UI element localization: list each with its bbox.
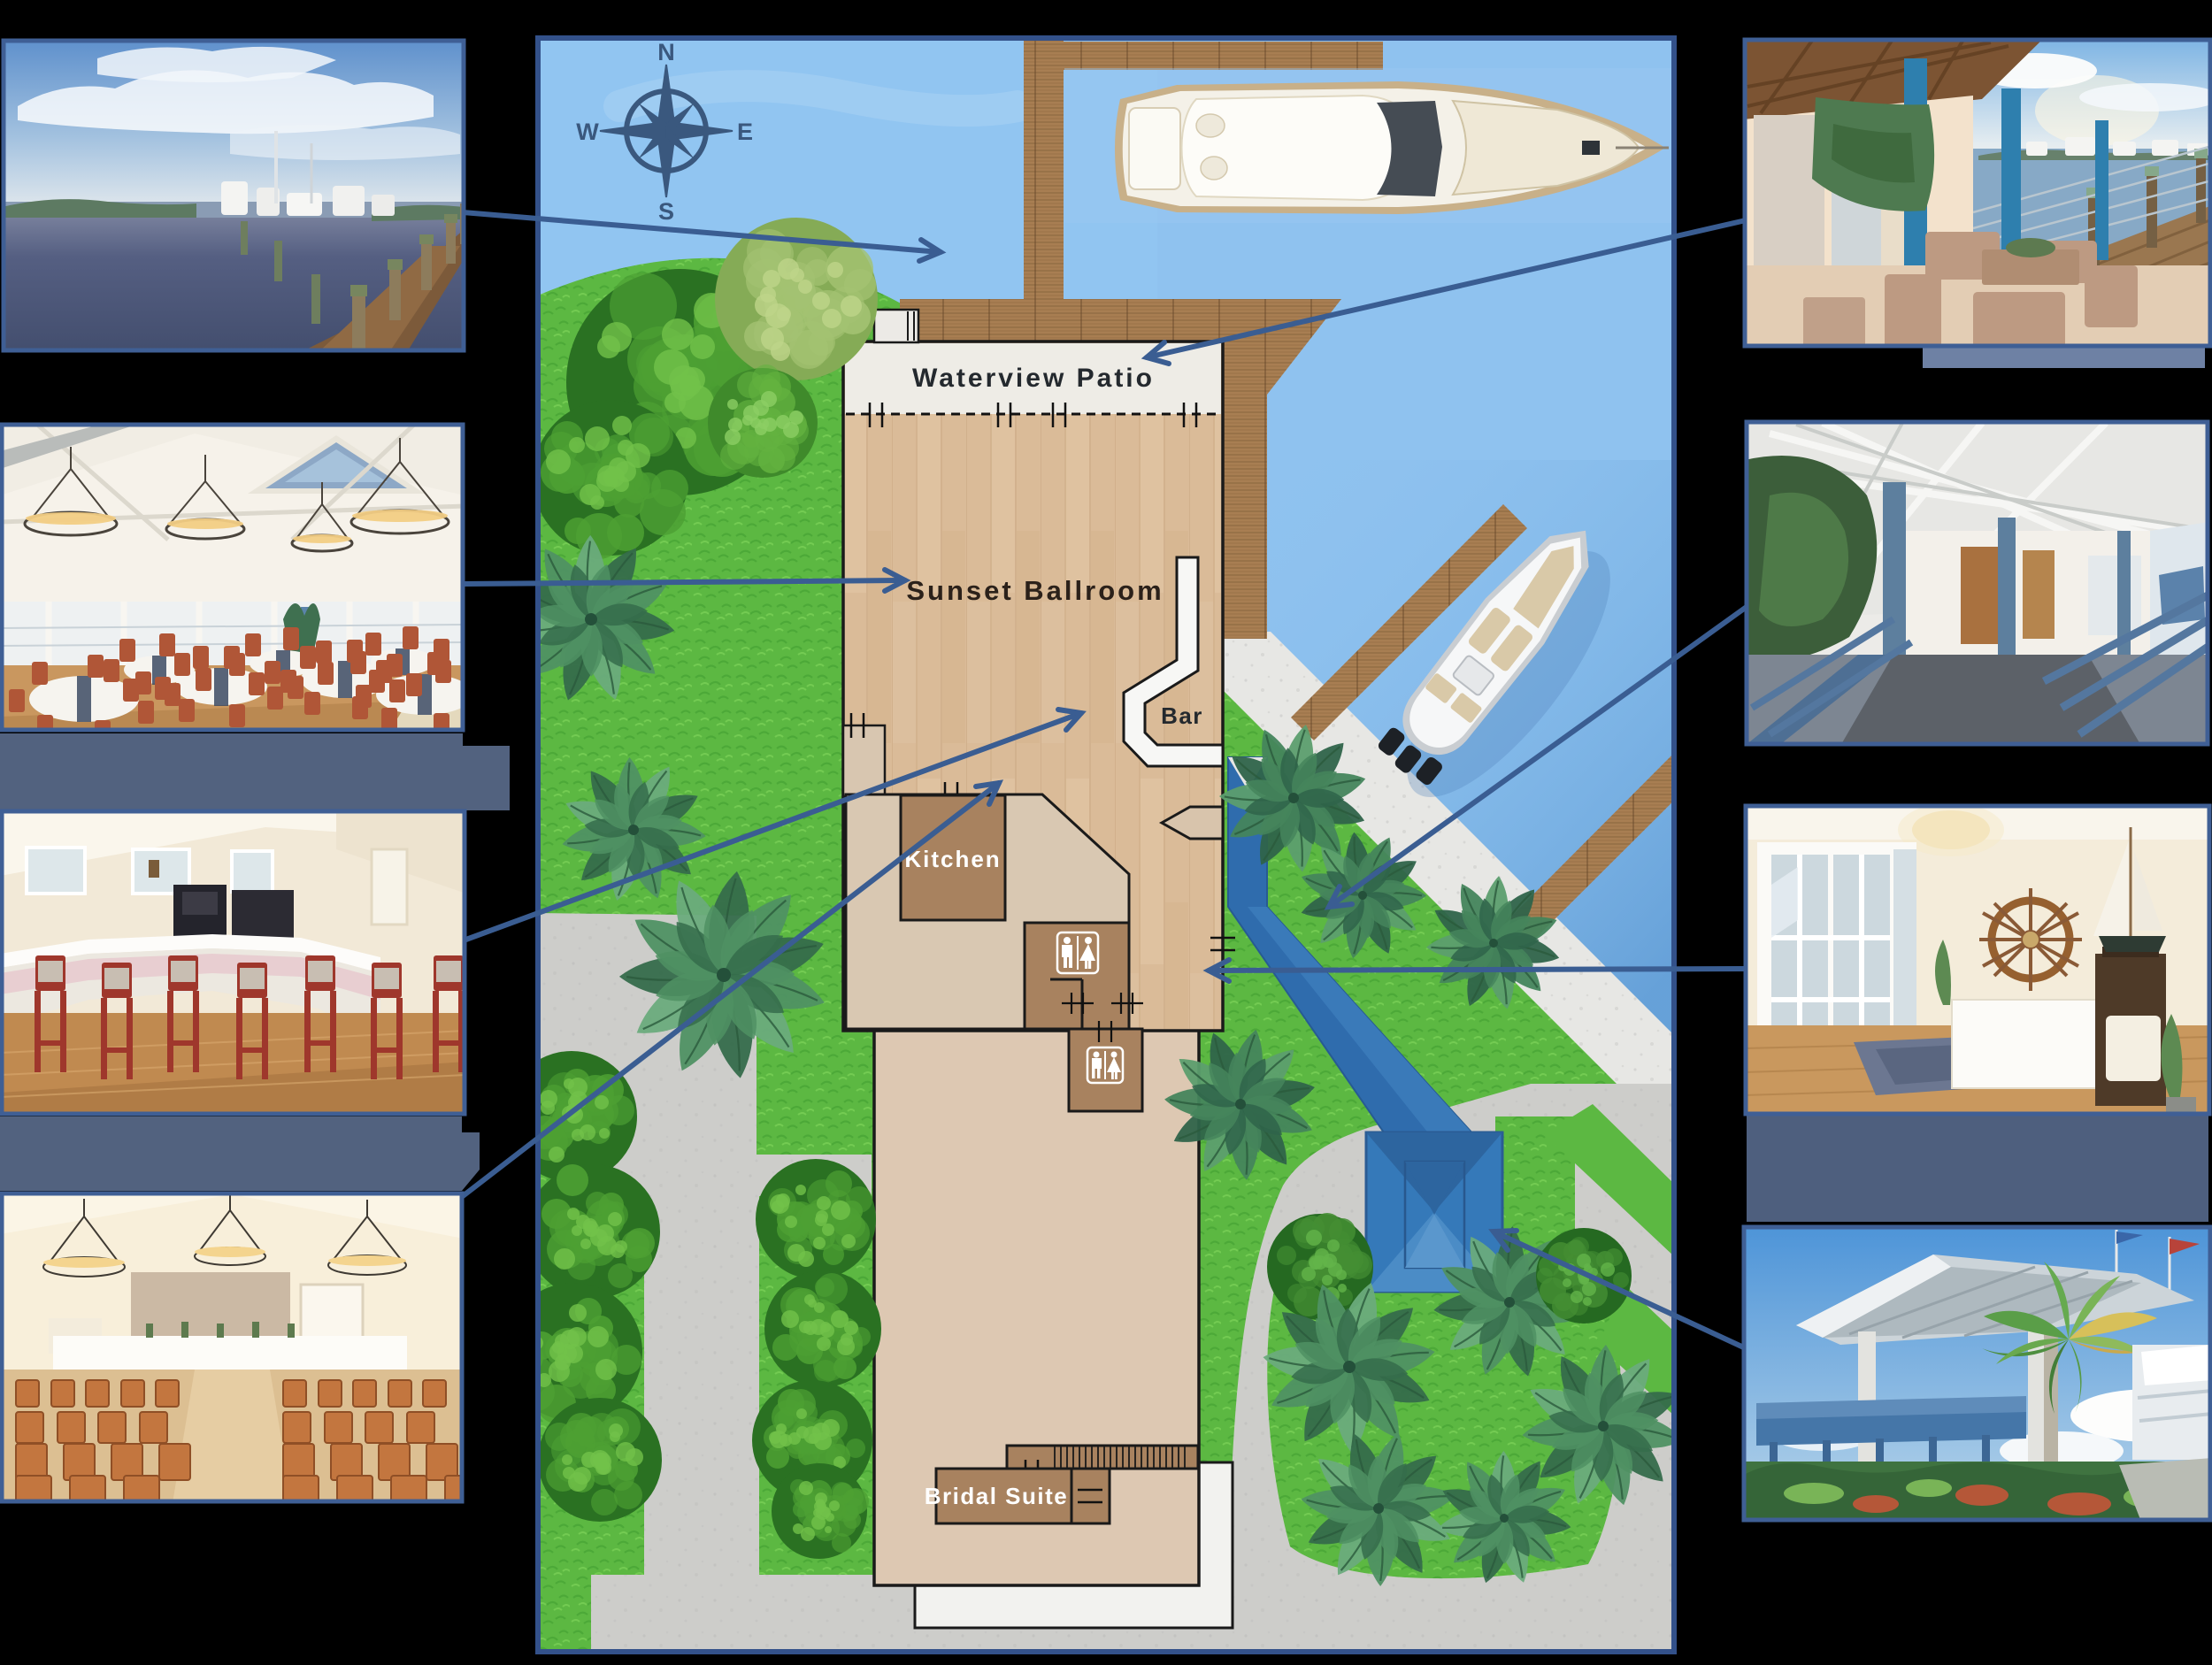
svg-text:E: E	[737, 119, 753, 145]
svg-text:Bridal Suite: Bridal Suite	[925, 1483, 1068, 1509]
svg-text:Kitchen: Kitchen	[904, 846, 1001, 872]
svg-text:Sunset Ballroom: Sunset Ballroom	[906, 575, 1164, 606]
svg-text:N: N	[657, 39, 675, 65]
svg-text:S: S	[658, 198, 674, 225]
svg-text:Bar: Bar	[1161, 702, 1203, 729]
svg-text:W: W	[576, 119, 599, 145]
svg-text:Waterview Patio: Waterview Patio	[912, 364, 1155, 393]
